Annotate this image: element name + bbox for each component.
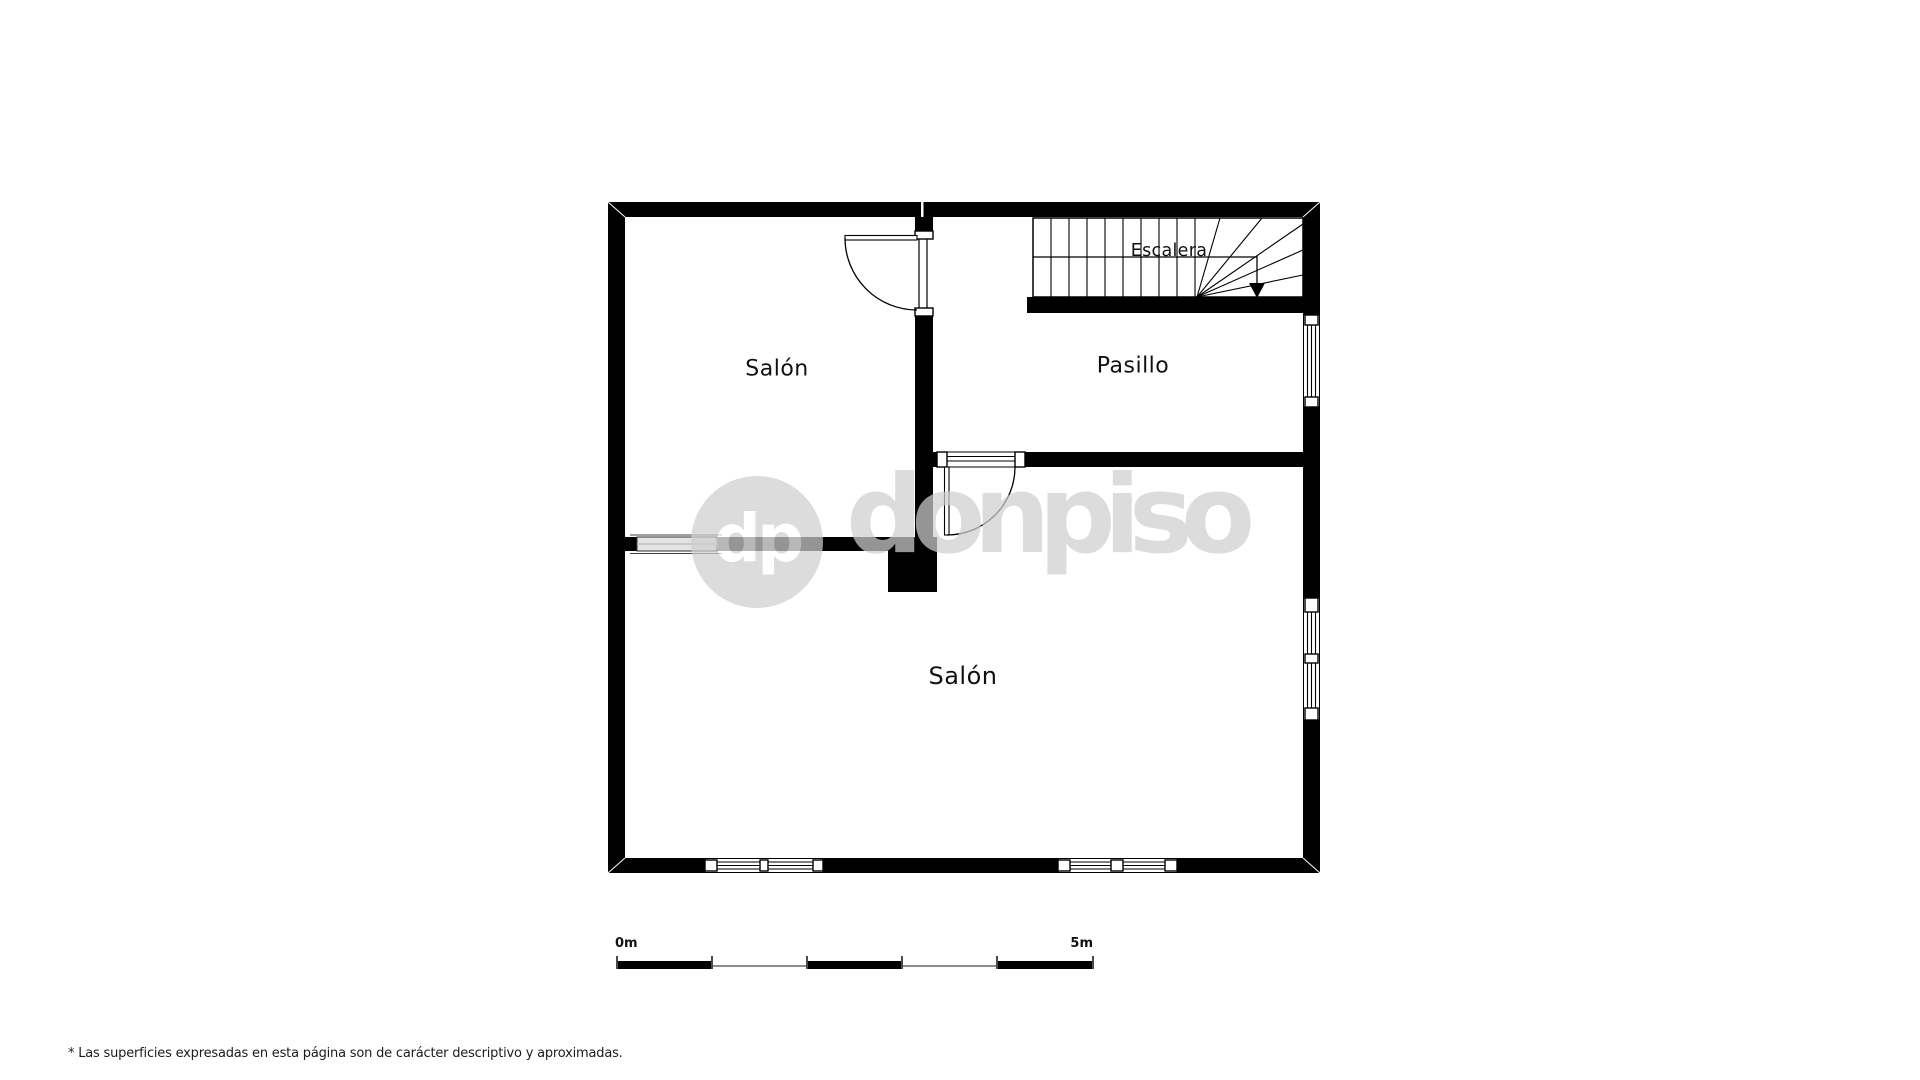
scale-tick (1092, 956, 1094, 969)
scale-tick (616, 956, 618, 969)
room-label-salon-bottom: Salón (928, 662, 997, 690)
watermark-brand: donpiso (846, 462, 1243, 570)
window-bottom-right (1058, 859, 1177, 873)
scale-label-end: 5m (1070, 936, 1093, 951)
room-label-pasillo: Pasillo (1097, 354, 1170, 379)
floor-plan-page: Salón Pasillo Salón Escalera dp donpiso … (0, 0, 1920, 1080)
door-top (845, 231, 933, 316)
door-arc (845, 238, 917, 310)
footnote: * Las superficies expresadas en esta pág… (68, 1046, 623, 1061)
scale-segment (997, 961, 1093, 969)
scale-tick (996, 956, 998, 969)
room-label-salon-top: Salón (745, 357, 808, 382)
stair-label-escalera: Escalera (1131, 241, 1207, 261)
scale-segment (617, 961, 712, 969)
scale-label-start: 0m (615, 936, 638, 951)
scale-tick (711, 956, 713, 969)
door-leaf (845, 236, 917, 241)
window-bottom-left (705, 859, 823, 873)
window-right-lower (1304, 598, 1320, 720)
scale-tick (901, 956, 903, 969)
scale-tick (806, 956, 808, 969)
scale-segment (807, 961, 902, 969)
dp-logo-text: dp (714, 500, 801, 577)
window-right-upper (1304, 315, 1320, 407)
watermark-dp-badge: dp (691, 476, 823, 608)
wall-notch (921, 202, 924, 217)
